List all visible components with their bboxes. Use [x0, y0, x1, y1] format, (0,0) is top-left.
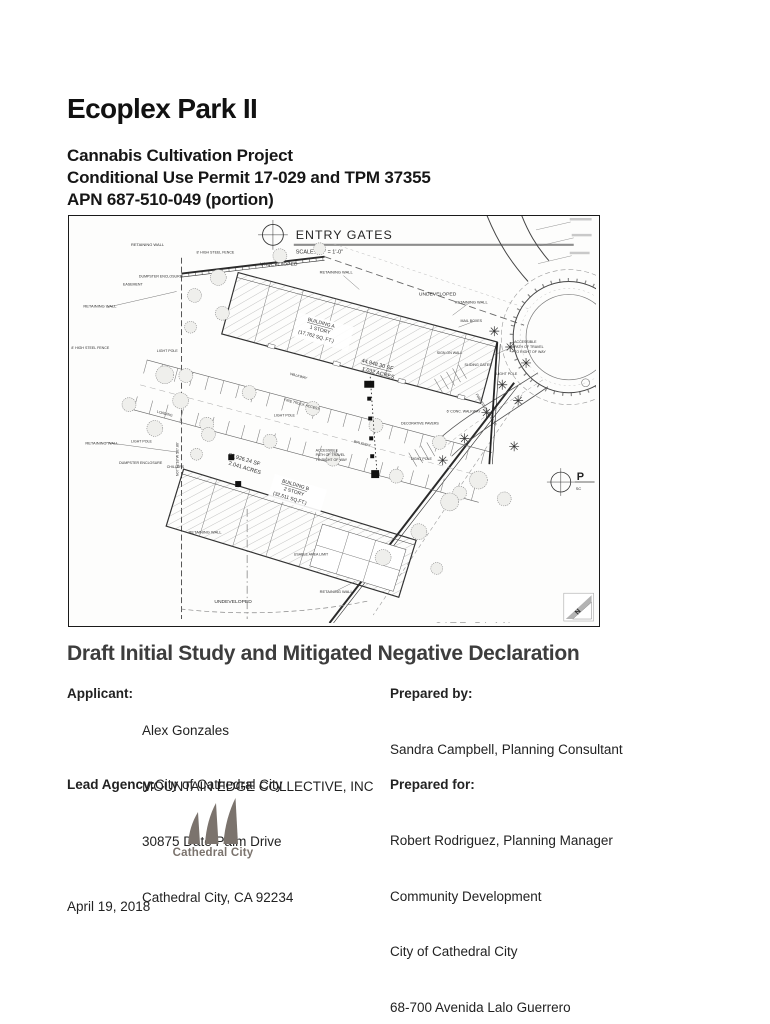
survey-leader-lines: [536, 218, 592, 264]
lead-agency-label: Lead Agency:: [67, 777, 155, 792]
site-plan-map: ENTRY GATES SCALE: 1/8" = 1'-0": [68, 215, 600, 627]
cathedral-city-logo: [184, 797, 242, 852]
document-date: April 19, 2018: [67, 899, 150, 914]
prepared-for-label: Prepared for:: [390, 777, 475, 792]
map-label: RETAINING WALL: [131, 242, 165, 247]
prepared-for-value: Robert Rodriguez, Planning Manager Commu…: [390, 795, 613, 1024]
map-label: LIGHT POLE: [131, 439, 153, 443]
map-label: WALKWAY: [290, 372, 309, 381]
svg-text:SC: SC: [576, 486, 582, 491]
prepared-by-label: Prepared by:: [390, 686, 473, 701]
map-label: DUMPSTER ENCLOSURE: [139, 275, 183, 279]
map-label: EASEMENT: [123, 282, 143, 286]
map-label-accessible-path-right: ACCESSIBLE PATH OF TRAVEL TO RIGHT OF WA…: [514, 340, 546, 354]
cathedral-city-logo-icon: [184, 797, 242, 847]
project-subtitle: Cannabis Cultivation Project Conditional…: [67, 145, 431, 211]
site-plan-drawing: ENTRY GATES SCALE: 1/8" = 1'-0": [69, 216, 596, 623]
map-label: DUMPSTER ENCLOSURE: [119, 461, 163, 465]
prepared-by-line: Sandra Campbell, Planning Consultant: [390, 741, 623, 760]
map-label: RETAINING WALL: [320, 270, 354, 275]
lead-agency-value: City of Cathedral City: [155, 776, 283, 795]
map-label: LIGHT POLE: [411, 457, 433, 461]
map-label: 6' CONC. WALKWAY: [447, 410, 481, 414]
map-label: UNDEVELOPED: [214, 599, 252, 605]
document-cover-page: Ecoplex Park II Cannabis Cultivation Pro…: [0, 0, 770, 1024]
map-label: UNDEVELOPED: [260, 262, 298, 268]
map-label-bearing: N07°12'18"W 507.86': [176, 442, 180, 476]
map-label-accessible-path-mid: ACCESSIBLE PATH OF TRAVEL TO RIGHT OF WA…: [316, 448, 348, 462]
map-label: MAIL BOXES: [461, 319, 483, 323]
map-label: 8' HIGH STEEL FENCE: [197, 251, 235, 255]
map-label: RETAINING WALL: [320, 589, 354, 594]
map-label: SLIDING GATES: [465, 363, 493, 367]
map-label: UNDEVELOPED: [419, 291, 457, 297]
page-title: Ecoplex Park II: [67, 93, 257, 125]
prepared-for-line: Robert Rodriguez, Planning Manager: [390, 832, 613, 851]
prepared-for-line: 68-700 Avenida Lalo Guerrero: [390, 999, 613, 1018]
map-label: WALKWAY: [353, 439, 372, 448]
svg-text:PATH OF TRAVEL: PATH OF TRAVEL: [514, 345, 543, 349]
applicant-line: Cathedral City, CA 92234: [142, 889, 374, 908]
site-plan-callout: P SC: [547, 468, 595, 496]
map-label: SIGN ON WALL: [437, 351, 463, 355]
map-label: DECORATIVE PAVERS: [401, 421, 439, 425]
map-label: RETAINING WALL: [189, 530, 223, 535]
applicant-label: Applicant:: [67, 686, 133, 701]
svg-text:P: P: [577, 471, 584, 483]
section-heading: Draft Initial Study and Mitigated Negati…: [67, 642, 579, 666]
subtitle-line: APN 687-510-049 (portion): [67, 189, 431, 211]
applicant-line: Alex Gonzales: [142, 722, 374, 741]
map-label: LIGHT POLE: [274, 414, 296, 418]
map-title: ENTRY GATES: [296, 228, 393, 242]
svg-text:PATH OF TRAVEL: PATH OF TRAVEL: [316, 453, 345, 457]
subtitle-line: Cannabis Cultivation Project: [67, 145, 431, 167]
prepared-for-line: City of Cathedral City: [390, 943, 613, 962]
prepared-for-line: Community Development: [390, 888, 613, 907]
map-label: LIGHT POLE: [496, 372, 518, 376]
subtitle-line: Conditional Use Permit 17-029 and TPM 37…: [67, 167, 431, 189]
north-arrow-icon: N: [564, 593, 594, 621]
svg-text:ACCESSIBLE: ACCESSIBLE: [316, 448, 339, 452]
map-label: USABLE AREA LIMIT: [294, 552, 329, 556]
map-label: LIGHT POLE: [157, 349, 179, 353]
applicant-value: Alex Gonzales MOUNTAIN EDGE COLLECTIVE, …: [142, 685, 374, 944]
logo-caption: Cathedral City: [158, 847, 268, 859]
svg-text:ACCESSIBLE: ACCESSIBLE: [514, 340, 537, 344]
entry-gates-detail-marker: [258, 220, 288, 250]
sheet-caption: SITE PLAN: [435, 621, 513, 623]
map-label: 8' HIGH STEEL FENCE: [71, 346, 109, 350]
map-label: RETAINING WALL: [455, 299, 489, 304]
map-label: RETAINING WALL: [83, 303, 117, 308]
map-label: RETAINING WALL: [85, 440, 119, 445]
svg-text:TO RIGHT OF WAY: TO RIGHT OF WAY: [514, 350, 546, 354]
svg-text:TO RIGHT OF WAY: TO RIGHT OF WAY: [316, 458, 348, 462]
